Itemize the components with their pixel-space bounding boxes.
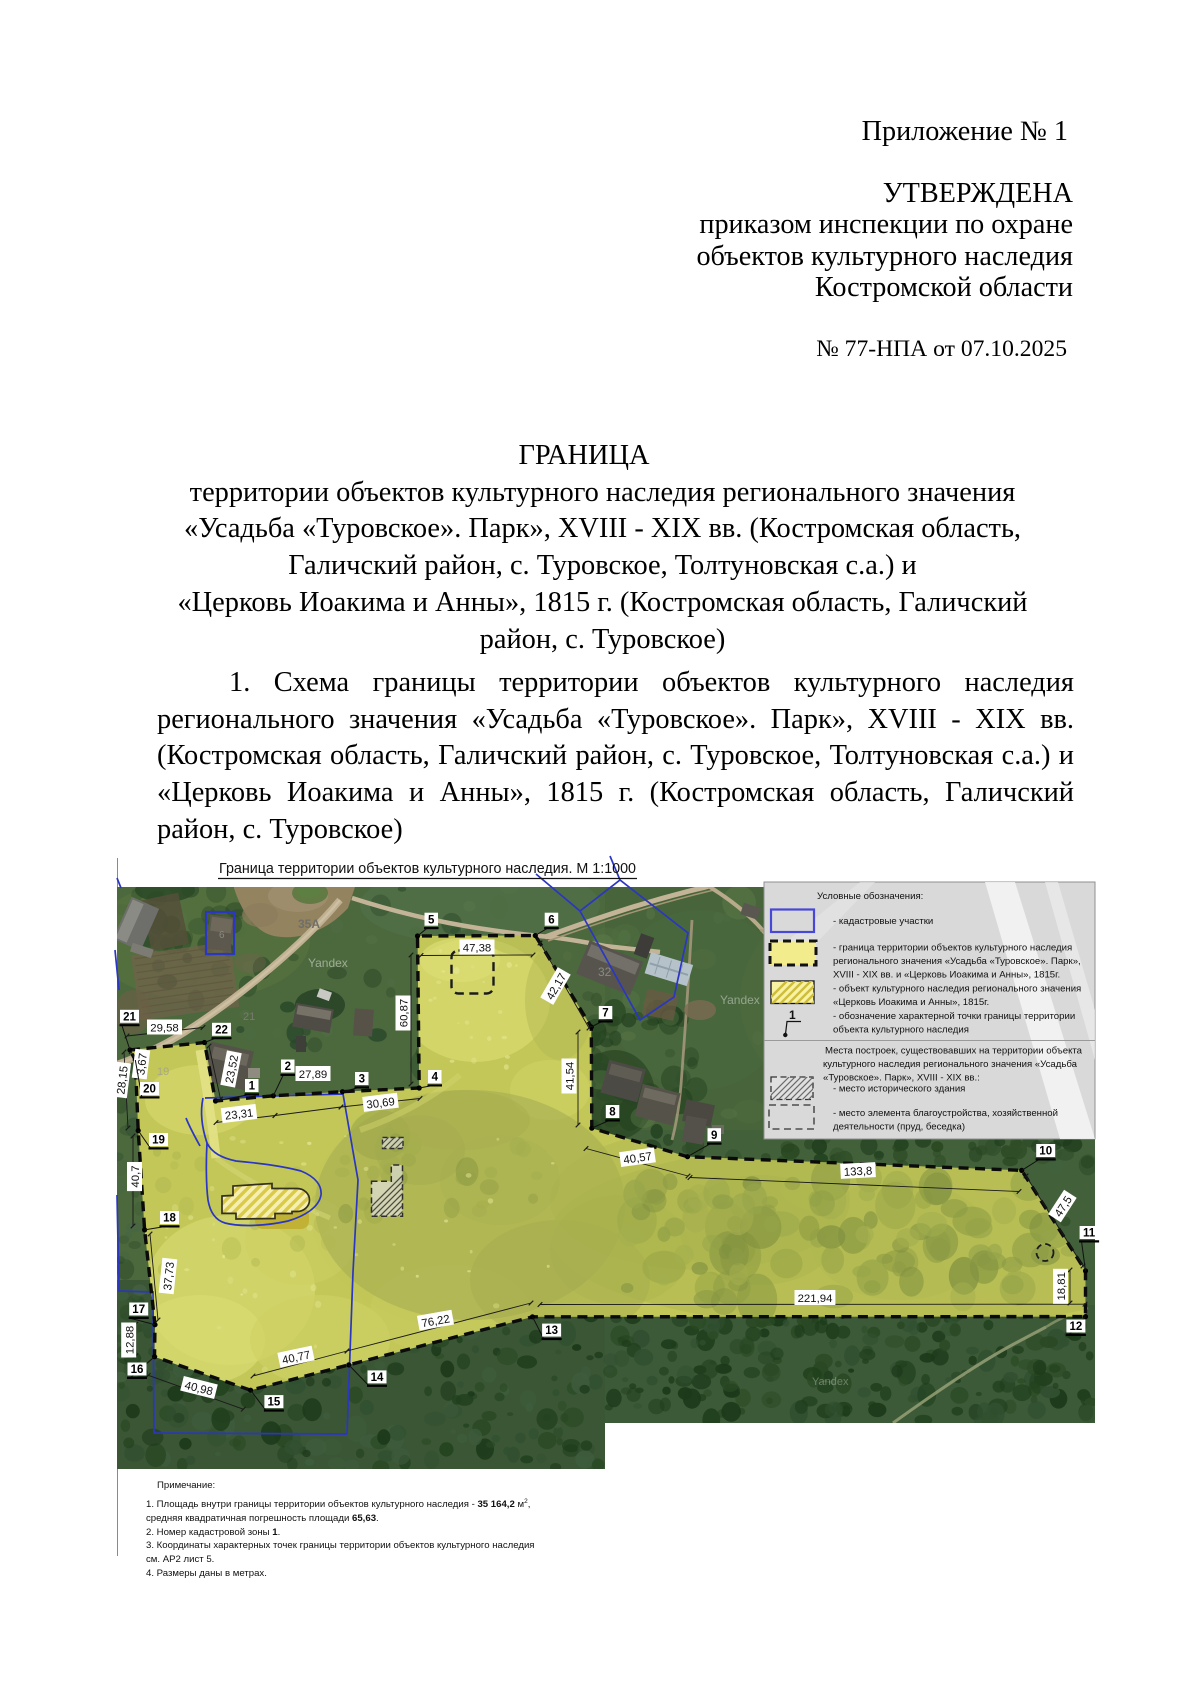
svg-text:«Туровское». Парк», XVIII - XI: «Туровское». Парк», XVIII - XIX вв.: — [823, 1073, 980, 1084]
svg-text:15: 15 — [268, 1397, 281, 1409]
svg-text:6: 6 — [219, 930, 225, 941]
svg-text:Yandex: Yandex — [720, 993, 760, 1007]
svg-text:1: 1 — [789, 1008, 796, 1022]
svg-text:8: 8 — [609, 1107, 616, 1119]
svg-text:деятельности (пруд, беседка): деятельности (пруд, беседка) — [833, 1122, 965, 1133]
svg-text:21: 21 — [123, 1011, 136, 1023]
svg-text:19: 19 — [157, 1066, 169, 1078]
svg-text:Условные обозначения:: Условные обозначения: — [817, 891, 923, 902]
svg-text:культурного наследия региональ: культурного наследия регионального значе… — [823, 1059, 1078, 1070]
svg-text:35А: 35А — [298, 917, 320, 931]
svg-text:18: 18 — [163, 1213, 176, 1225]
svg-text:3: 3 — [359, 1074, 365, 1086]
svg-text:20: 20 — [143, 1084, 156, 1096]
svg-text:9: 9 — [711, 1130, 717, 1142]
svg-text:29,58: 29,58 — [150, 1023, 179, 1035]
svg-text:4: 4 — [432, 1072, 439, 1084]
svg-text:- граница территории объектов: - граница территории объектов культурног… — [833, 943, 1072, 954]
svg-text:17: 17 — [132, 1304, 145, 1316]
svg-text:14: 14 — [371, 1372, 384, 1384]
svg-text:16: 16 — [131, 1364, 144, 1376]
svg-text:40,7: 40,7 — [130, 1165, 142, 1187]
svg-text:41,54: 41,54 — [565, 1062, 577, 1091]
svg-text:12: 12 — [1070, 1321, 1083, 1333]
svg-text:7: 7 — [602, 1008, 608, 1020]
svg-text:19: 19 — [152, 1135, 165, 1147]
svg-text:22: 22 — [215, 1024, 228, 1036]
svg-text:объекта культурного наследия: объекта культурного наследия — [833, 1025, 969, 1036]
svg-text:- обозначение характерной точк: - обозначение характерной точки границы … — [833, 1011, 1075, 1022]
svg-text:2: 2 — [285, 1061, 291, 1073]
svg-text:13: 13 — [545, 1325, 558, 1337]
svg-text:- место исторического здания: - место исторического здания — [833, 1084, 965, 1095]
svg-text:21: 21 — [243, 1011, 255, 1023]
svg-text:регионального значения «Усадьб: регионального значения «Усадьба «Туровск… — [833, 956, 1081, 967]
svg-text:6: 6 — [548, 914, 554, 926]
svg-text:5: 5 — [428, 914, 435, 926]
svg-text:27,89: 27,89 — [299, 1069, 328, 1081]
svg-text:133,8: 133,8 — [844, 1165, 873, 1178]
svg-text:Граница территории объектов ку: Граница территории объектов культурного … — [219, 861, 636, 877]
svg-text:1: 1 — [249, 1081, 256, 1093]
svg-text:- место элемента благоустройст: - место элемента благоустройства, хозяйс… — [833, 1108, 1058, 1119]
svg-text:- кадастровые участки: - кадастровые участки — [833, 916, 933, 927]
svg-text:12,88: 12,88 — [124, 1326, 136, 1355]
svg-text:47,38: 47,38 — [463, 943, 492, 955]
svg-text:- объект культурного наследия: - объект культурного наследия региональн… — [833, 984, 1081, 995]
svg-text:Yandex: Yandex — [308, 956, 348, 970]
svg-text:«Церковь Иоакима и Анны», 1815: «Церковь Иоакима и Анны», 1815г. — [833, 997, 989, 1008]
svg-text:11: 11 — [1083, 1228, 1096, 1240]
svg-text:Места построек, существовавших: Места построек, существовавших на террит… — [825, 1046, 1083, 1057]
svg-text:18,81: 18,81 — [1056, 1272, 1068, 1301]
svg-text:60,87: 60,87 — [399, 999, 411, 1028]
svg-text:10: 10 — [1039, 1146, 1052, 1158]
svg-text:Yandex: Yandex — [812, 1376, 849, 1388]
svg-text:221,94: 221,94 — [798, 1293, 833, 1305]
svg-text:32: 32 — [598, 965, 612, 979]
svg-text:XVIII - XIX вв. и «Церковь Иоа: XVIII - XIX вв. и «Церковь Иоакима и Анн… — [833, 970, 1060, 981]
